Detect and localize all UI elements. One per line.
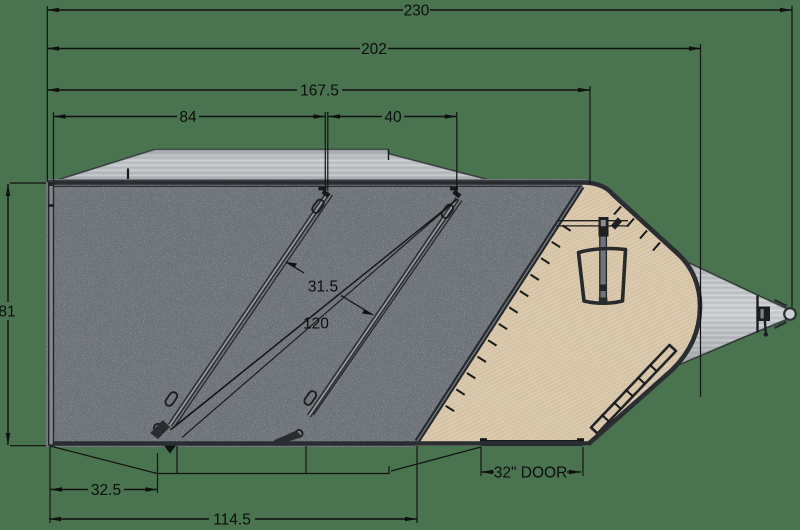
svg-text:230: 230 [404,3,430,20]
svg-text:32.5: 32.5 [91,482,121,499]
svg-text:114.5: 114.5 [213,512,251,529]
svg-text:40: 40 [384,109,402,126]
svg-text:202: 202 [361,41,387,58]
svg-text:81: 81 [0,304,16,321]
svg-text:120: 120 [303,316,329,333]
svg-text:32" DOOR: 32" DOOR [494,465,568,482]
svg-text:31.5: 31.5 [308,279,338,296]
svg-text:167.5: 167.5 [300,83,339,100]
svg-text:84: 84 [179,109,197,126]
